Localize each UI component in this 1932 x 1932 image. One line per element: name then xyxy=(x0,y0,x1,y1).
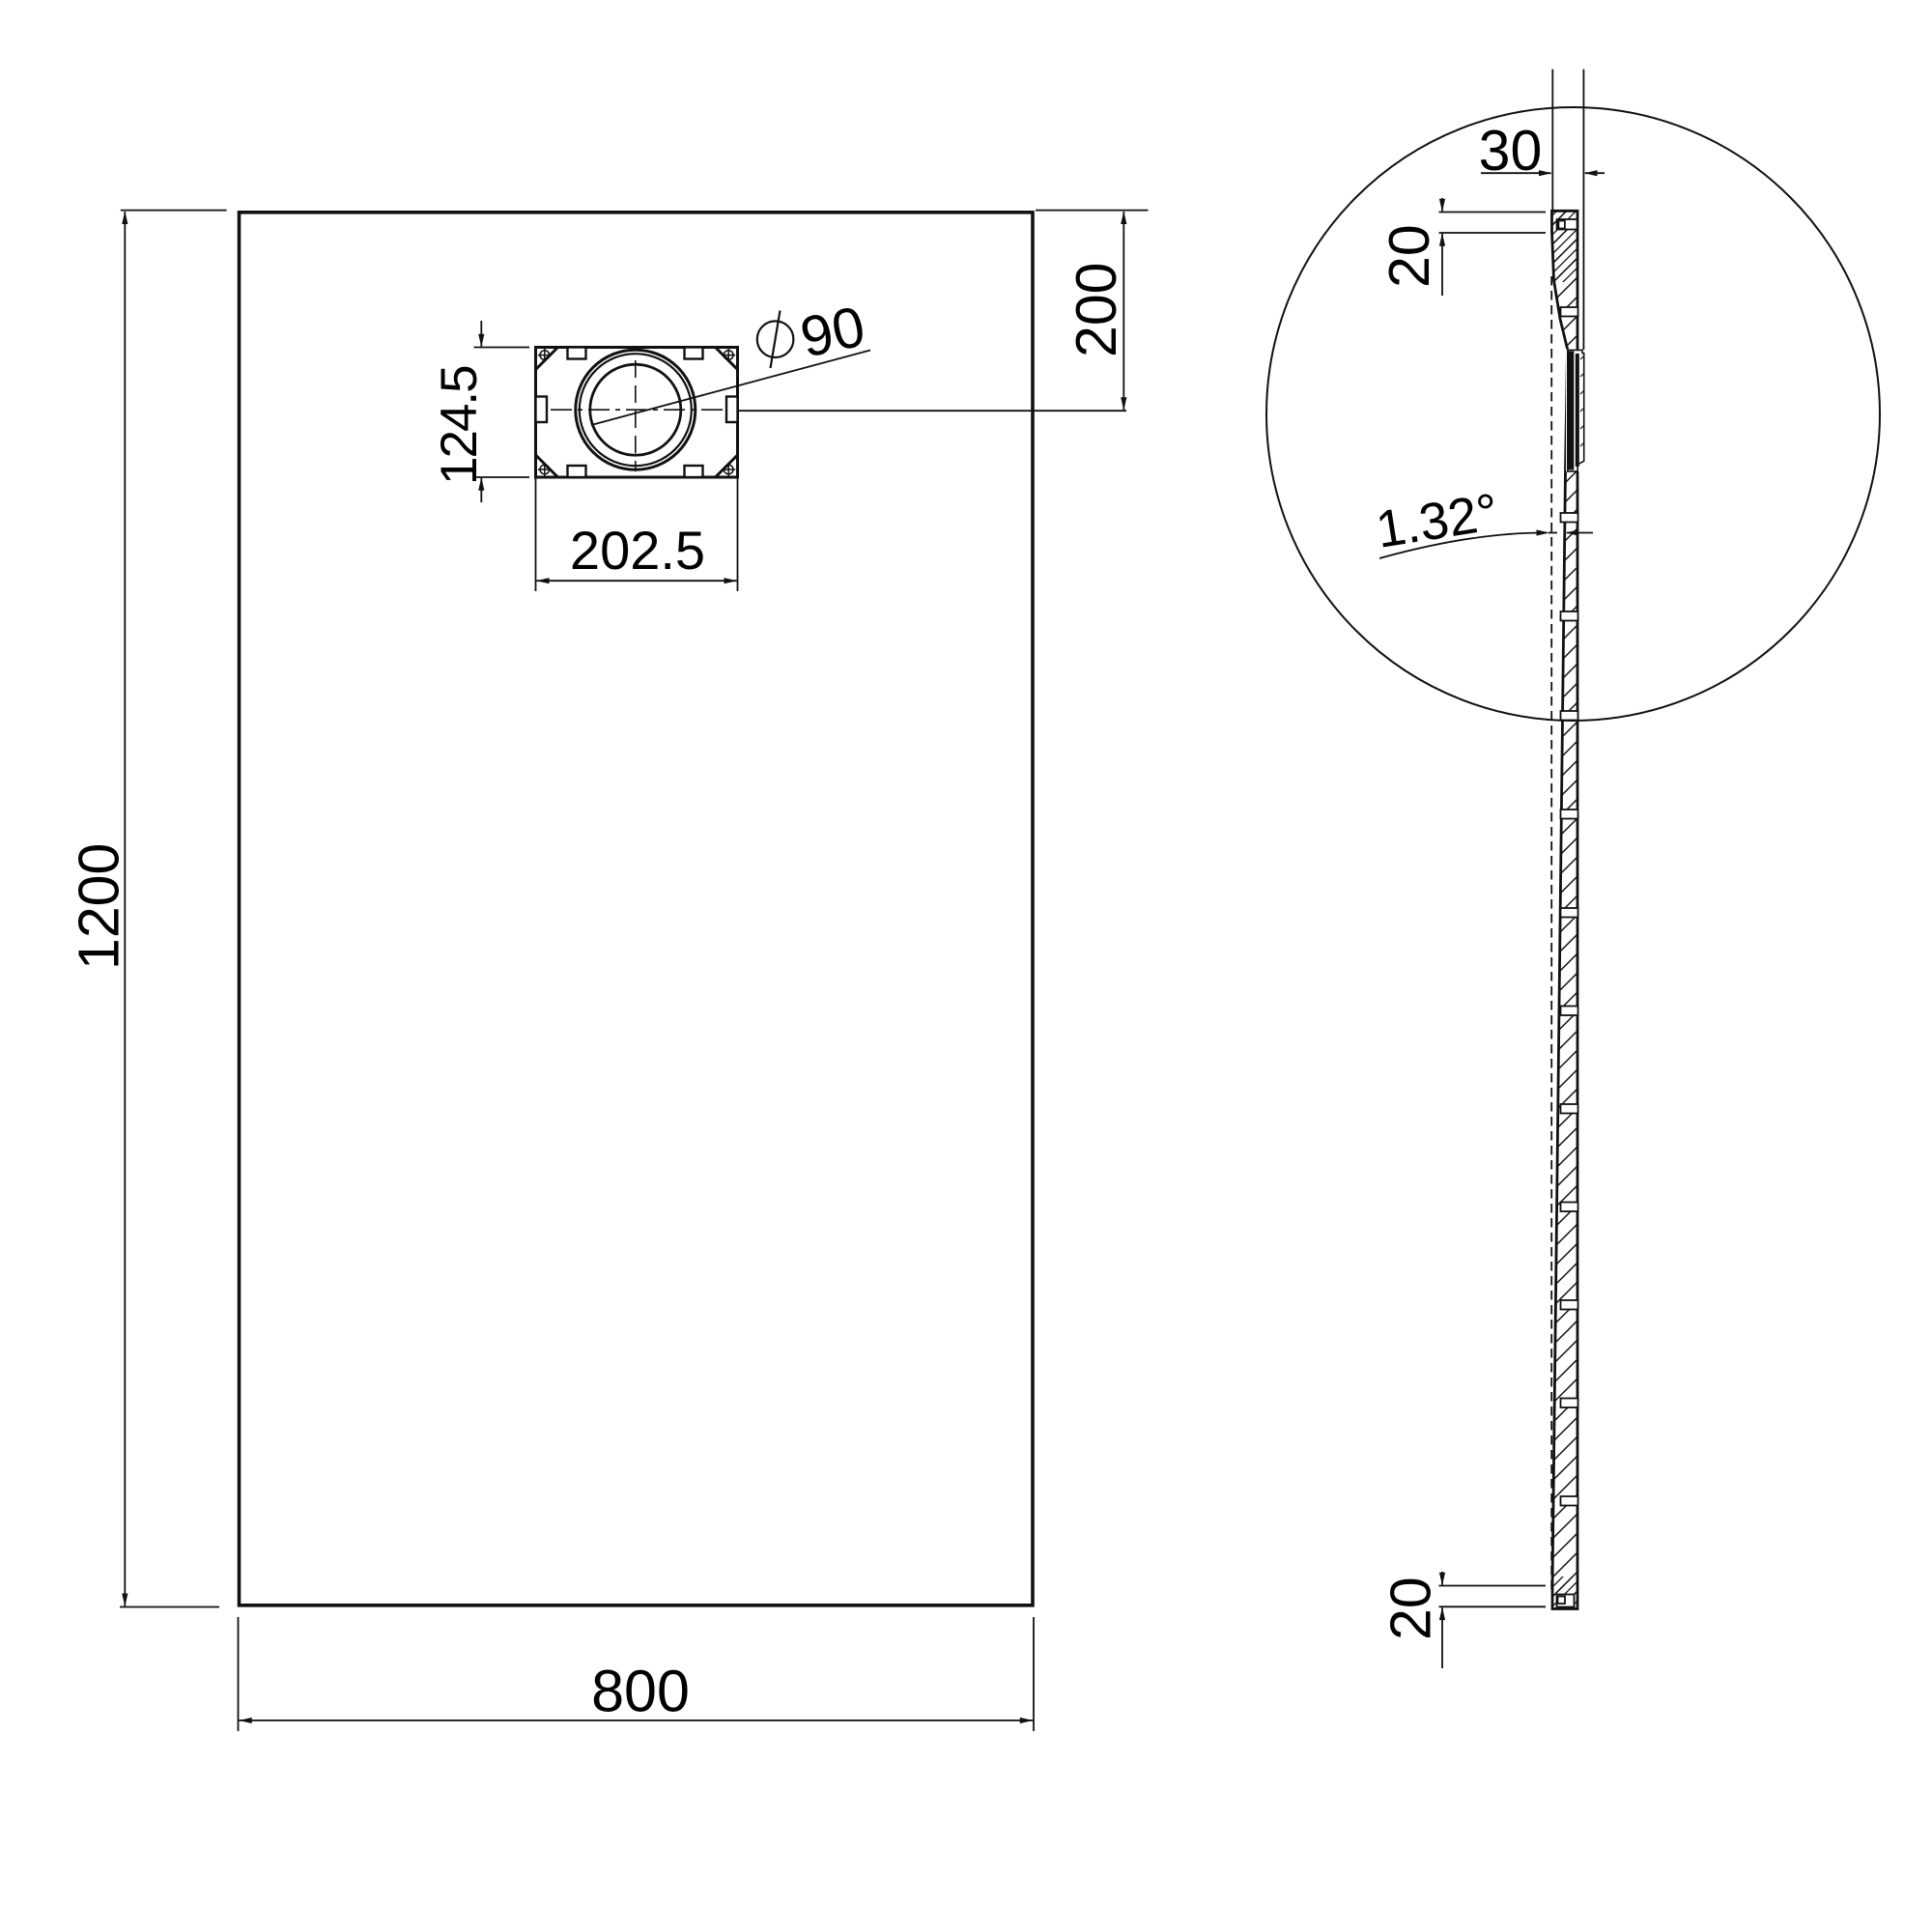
svg-text:124.5: 124.5 xyxy=(431,366,488,485)
svg-text:20: 20 xyxy=(1378,224,1441,288)
svg-text:1200: 1200 xyxy=(68,843,131,970)
svg-text:30: 30 xyxy=(1479,119,1543,183)
svg-text:20: 20 xyxy=(1379,1577,1443,1640)
svg-text:200: 200 xyxy=(1065,263,1128,357)
svg-text:202.5: 202.5 xyxy=(570,520,705,581)
svg-text:800: 800 xyxy=(591,1659,690,1724)
svg-text:90: 90 xyxy=(795,295,870,370)
